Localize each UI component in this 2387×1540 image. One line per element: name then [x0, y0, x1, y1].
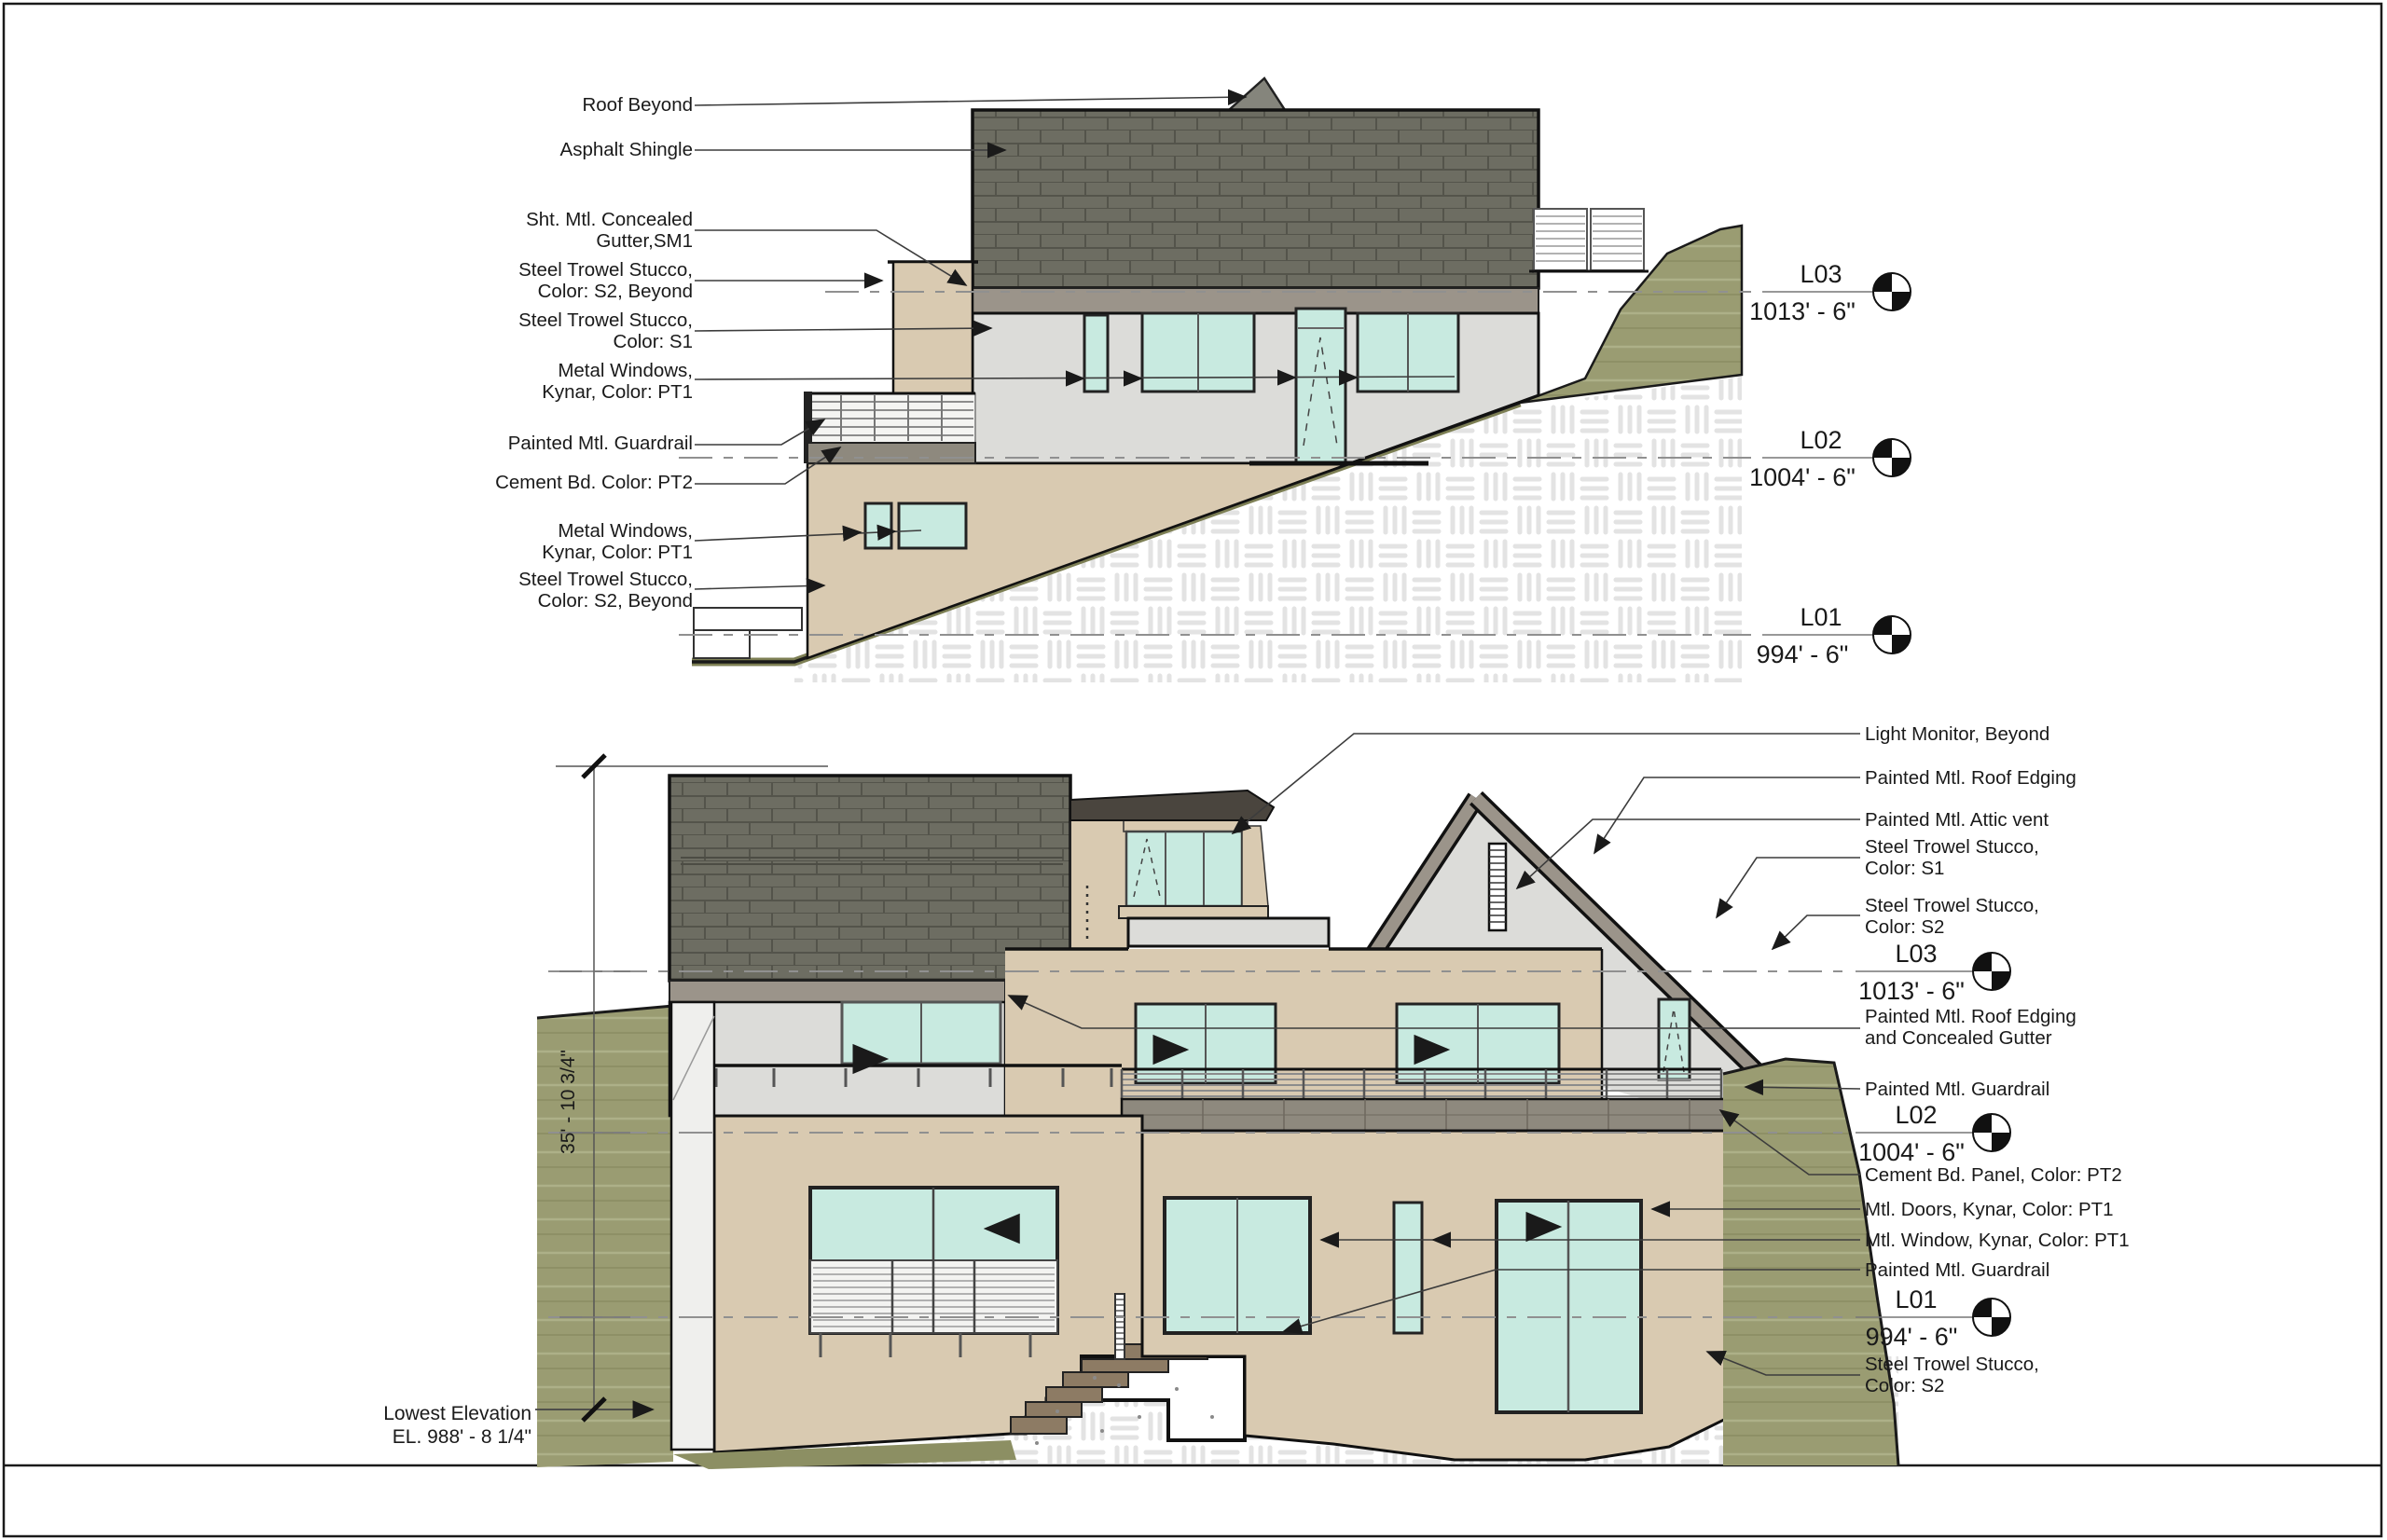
monitor-roof-deck: [1128, 918, 1329, 946]
material-label: Steel Trowel Stucco, Color: S2: [1865, 895, 2219, 938]
level-marker-name: L01: [1765, 603, 1877, 632]
level-marker-name: L01: [1856, 1286, 1977, 1314]
lowest-elevation-label: Lowest Elevation EL. 988' - 8 1/4": [308, 1402, 531, 1449]
material-label: Steel Trowel Stucco, Color: S2, Beyond: [394, 259, 693, 302]
material-label: Painted Mtl. Guardrail: [1865, 1079, 2219, 1100]
height-dimension: 35' - 10 3/4": [558, 971, 580, 1232]
attic-vent: [1489, 844, 1506, 930]
material-label: Steel Trowel Stucco, Color: S2, Beyond: [394, 569, 693, 612]
material-label: Steel Trowel Stucco, Color: S1: [394, 309, 693, 352]
level-marker-name: L02: [1856, 1101, 1977, 1130]
gable-narrow-window: [1659, 999, 1690, 1079]
elevation-sheet: Roof Beyond Asphalt Shingle Sht. Mtl. Co…: [0, 0, 2387, 1540]
material-label: Painted Mtl. Roof Edging: [1865, 767, 2219, 789]
material-label: Asphalt Shingle: [394, 139, 693, 160]
cement-board-band: [1122, 1099, 1730, 1131]
material-label: Metal Windows, Kynar, Color: PT1: [394, 520, 693, 563]
material-label: Sht. Mtl. Concealed Gutter,SM1: [394, 209, 693, 252]
material-label: Painted Mtl. Roof Edging and Concealed G…: [1865, 1006, 2219, 1049]
material-label: Metal Windows, Kynar, Color: PT1: [394, 360, 693, 403]
material-label: Mtl. Doors, Kynar, Color: PT1: [1865, 1199, 2219, 1220]
lower-elevation-drawing: [537, 776, 1898, 1469]
material-label: Roof Beyond: [394, 94, 693, 116]
louvered-window: [810, 1188, 1057, 1357]
material-label: Cement Bd. Color: PT2: [394, 472, 693, 493]
material-label: Cement Bd. Panel, Color: PT2: [1865, 1164, 2219, 1186]
side-return-wall: [671, 1002, 714, 1450]
material-label: Light Monitor, Beyond: [1865, 723, 2219, 745]
monitor-roof: [1070, 791, 1274, 820]
hill-fence: [1529, 209, 1649, 271]
material-label: Mtl. Window, Kynar, Color: PT1: [1865, 1230, 2219, 1251]
gutter-fascia: [669, 981, 1005, 1002]
level-marker-elevation: 994' - 6": [1718, 640, 1886, 669]
level-marker-name: L03: [1765, 260, 1877, 289]
upper-elevation-drawing: [692, 78, 1742, 682]
level-marker-elevation: 1013' - 6": [1832, 977, 1991, 1006]
material-label: Steel Trowel Stucco, Color: S2: [1865, 1354, 2219, 1396]
material-label: Painted Mtl. Attic vent: [1865, 809, 2219, 831]
level-marker-elevation: 1013' - 6": [1718, 297, 1886, 326]
roof-peak-vent: [1229, 78, 1285, 110]
level-marker-name: L02: [1765, 426, 1877, 455]
material-label: Painted Mtl. Guardrail: [1865, 1259, 2219, 1281]
level-marker-elevation: 1004' - 6": [1832, 1138, 1991, 1167]
balcony-guardrail: [804, 392, 975, 463]
shingle-roof: [973, 110, 1538, 288]
material-label: Steel Trowel Stucco, Color: S1: [1865, 836, 2219, 879]
material-label: Painted Mtl. Guardrail: [394, 433, 693, 454]
gutter-fascia: [973, 288, 1538, 313]
level-marker-elevation: 994' - 6": [1832, 1323, 1991, 1352]
level-marker-elevation: 1004' - 6": [1718, 463, 1886, 492]
level-marker-name: L03: [1856, 940, 1977, 969]
